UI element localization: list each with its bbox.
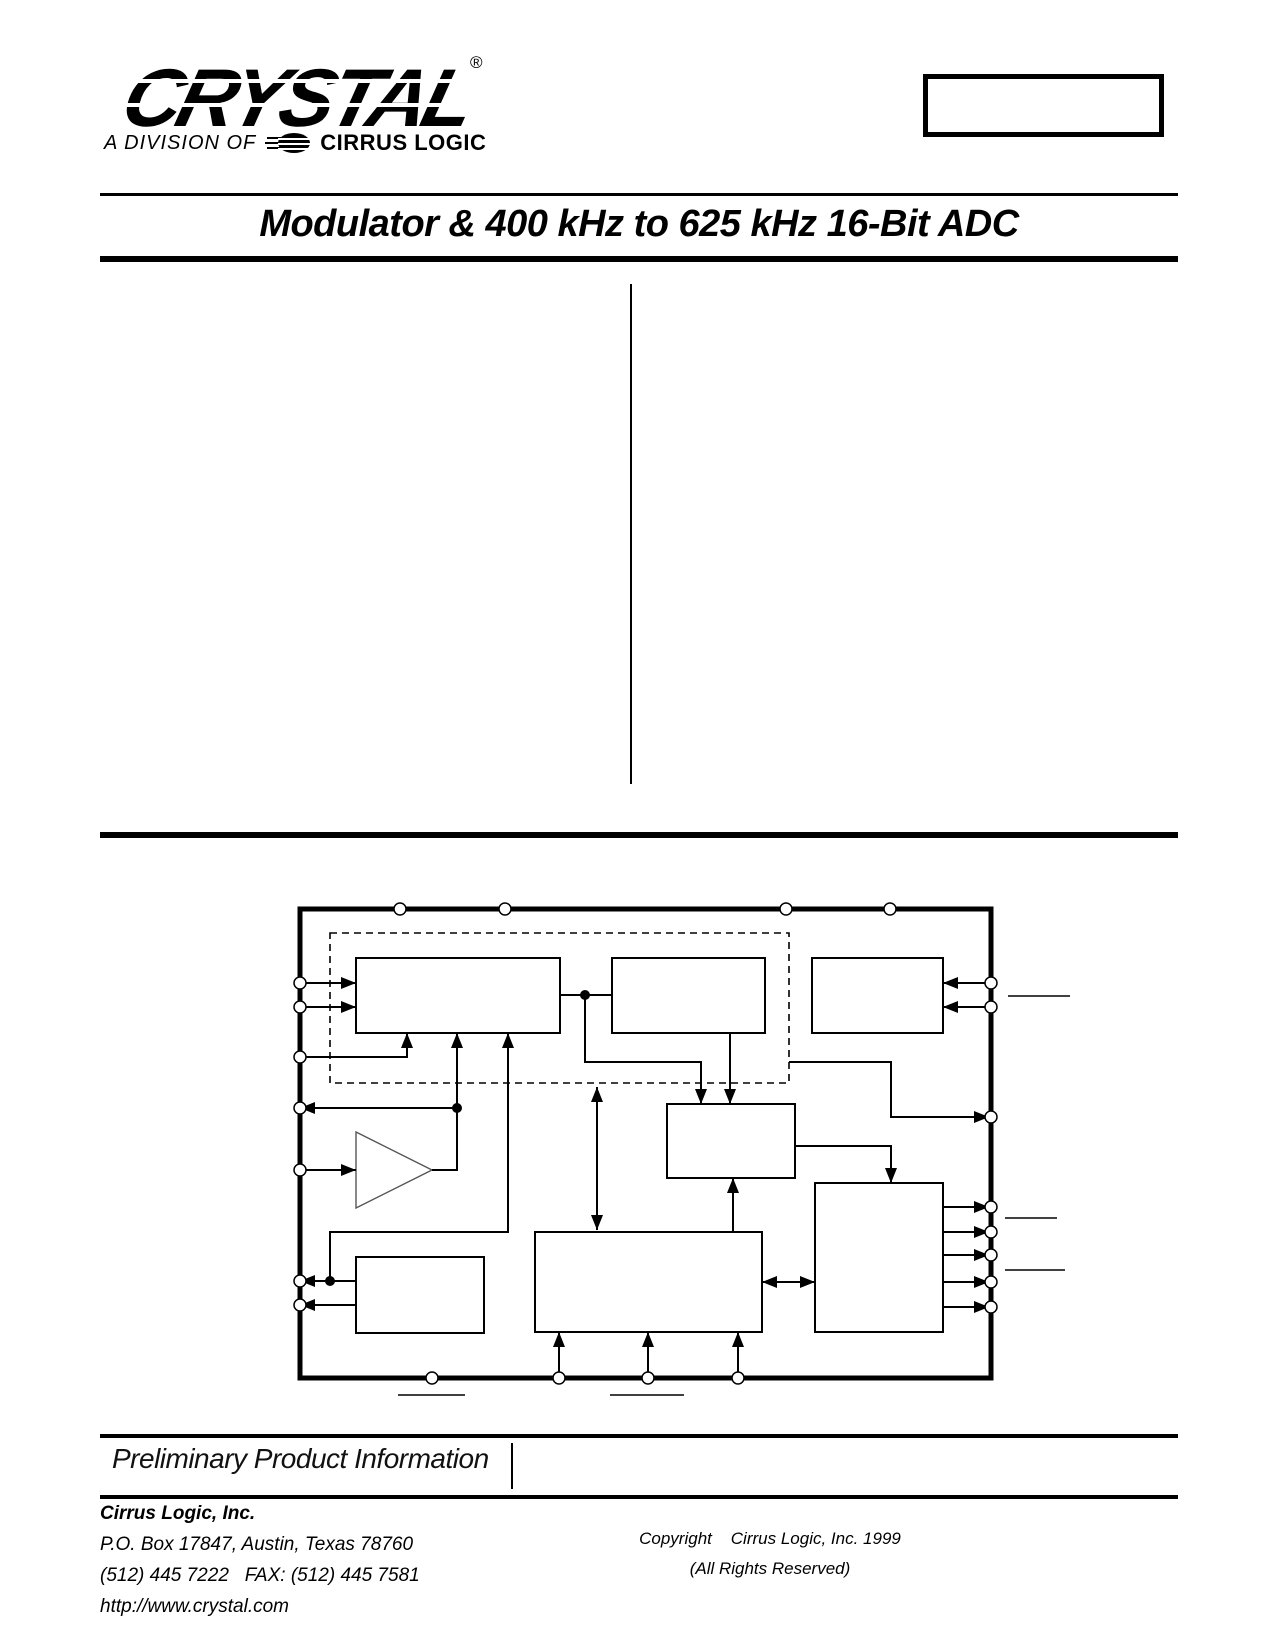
wire-center-to-output-block [795, 1146, 891, 1183]
pin [294, 977, 306, 989]
pin [985, 1249, 997, 1261]
pin [294, 1299, 306, 1311]
pin [985, 1111, 997, 1123]
footer-contact: Cirrus Logic, Inc. P.O. Box 17847, Austi… [100, 1498, 570, 1622]
pin [732, 1372, 744, 1384]
logo-stripe [92, 103, 492, 107]
block-bottom-middle [535, 1232, 762, 1332]
block-top-right [812, 958, 943, 1033]
footer-address: P.O. Box 17847, Austin, Texas 78760 [100, 1529, 570, 1560]
pin [294, 1051, 306, 1063]
datasheet-page: CRYSTAL ® A DIVISION OF CIRRUS LOGIC Mod… [0, 0, 1275, 1648]
block-top-middle [612, 958, 765, 1033]
rule-title-bottom [100, 256, 1178, 262]
registered-mark: ® [470, 53, 483, 72]
wire-input-3 [300, 1033, 407, 1057]
division-prefix-label: A DIVISION OF [104, 132, 256, 155]
pin [294, 1102, 306, 1114]
rule-banner-top [100, 1434, 1178, 1438]
footer-company: Cirrus Logic, Inc. [100, 1498, 570, 1529]
copyright-line: Copyright Cirrus Logic, Inc. 1999 [610, 1524, 930, 1554]
opamp-triangle [356, 1132, 432, 1208]
pin [294, 1001, 306, 1013]
block-top-left [356, 958, 560, 1033]
pin [884, 903, 896, 915]
block-diagram [280, 880, 1100, 1410]
footer-phone-fax: (512) 445 7222 FAX: (512) 445 7581 [100, 1560, 570, 1591]
rule-title-top [100, 193, 1178, 196]
logo-stripe [92, 79, 492, 83]
pin [294, 1164, 306, 1176]
pin [985, 1276, 997, 1288]
pin [985, 1301, 997, 1313]
cirrus-swirl-icon [265, 131, 311, 155]
division-line: A DIVISION OF CIRRUS LOGIC [104, 130, 486, 156]
pin [426, 1372, 438, 1384]
banner-divider [511, 1443, 513, 1489]
footer-copyright: Copyright Cirrus Logic, Inc. 1999 (All R… [610, 1524, 930, 1584]
rights-reserved-line: (All Rights Reserved) [610, 1554, 930, 1584]
pin [780, 903, 792, 915]
block-center [667, 1104, 795, 1178]
pin [553, 1372, 565, 1384]
pin [985, 1201, 997, 1213]
page-title: Modulator & 400 kHz to 625 kHz 16-Bit AD… [100, 203, 1178, 246]
division-brand-label: CIRRUS LOGIC [320, 130, 486, 156]
column-divider [630, 284, 632, 784]
junction-dot [452, 1103, 462, 1113]
junction-dot [325, 1276, 335, 1286]
part-number-box [923, 74, 1164, 137]
pin [642, 1372, 654, 1384]
pin [394, 903, 406, 915]
banner-title: Preliminary Product Information [112, 1443, 489, 1475]
wire-modulator-data-out [789, 1062, 989, 1117]
pin [985, 1001, 997, 1013]
pin [985, 977, 997, 989]
block-bottom-left [356, 1257, 484, 1333]
wire-opamp-out [432, 1033, 457, 1170]
footer-website[interactable]: http://www.crystal.com [100, 1591, 570, 1622]
junction-dot [580, 990, 590, 1000]
pin [985, 1226, 997, 1238]
block-right-output [815, 1183, 943, 1332]
pin [499, 903, 511, 915]
pin [294, 1275, 306, 1287]
rule-body-bottom [100, 832, 1178, 838]
